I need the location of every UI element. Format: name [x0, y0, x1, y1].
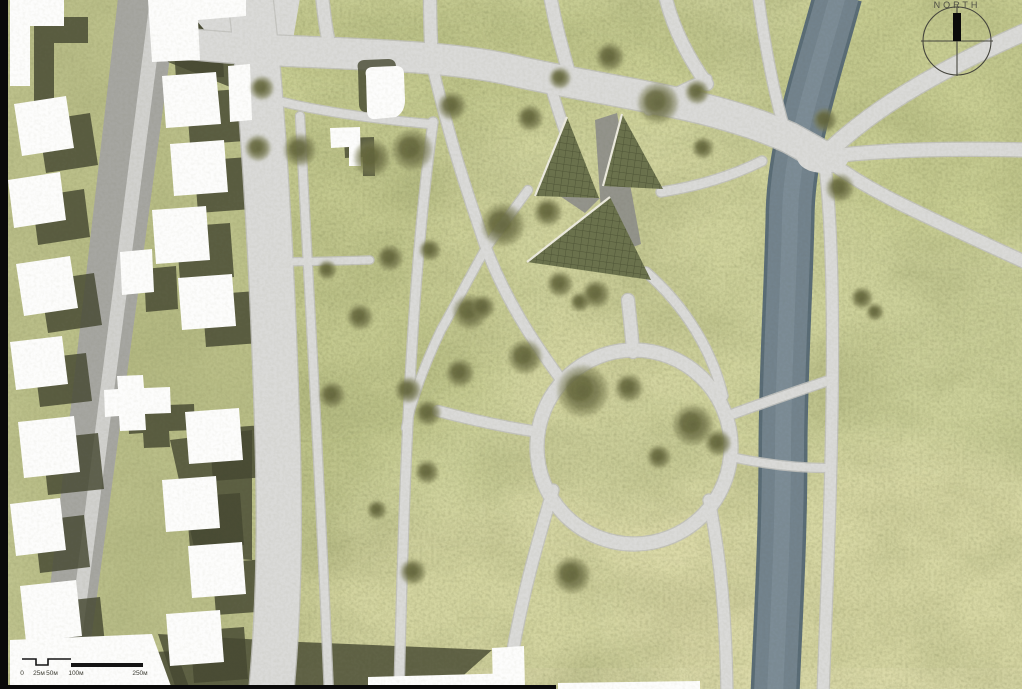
scalebar-label: 250м	[132, 670, 148, 677]
site-plan: NORTH 025м50м100м250м	[0, 0, 1022, 689]
site-plan-svg: NORTH 025м50м100м250м	[0, 0, 1022, 689]
scalebar-label: 50м	[46, 670, 58, 677]
scalebar-label: 25м	[33, 670, 45, 677]
compass-needle-icon	[953, 13, 961, 41]
scalebar-label: 100м	[68, 670, 84, 677]
scalebar-label: 0	[20, 670, 24, 677]
frame-bar	[0, 685, 556, 689]
scalebar-bar	[71, 663, 143, 667]
frame-bar	[0, 0, 8, 689]
overlay-grain-texture	[0, 0, 1022, 689]
